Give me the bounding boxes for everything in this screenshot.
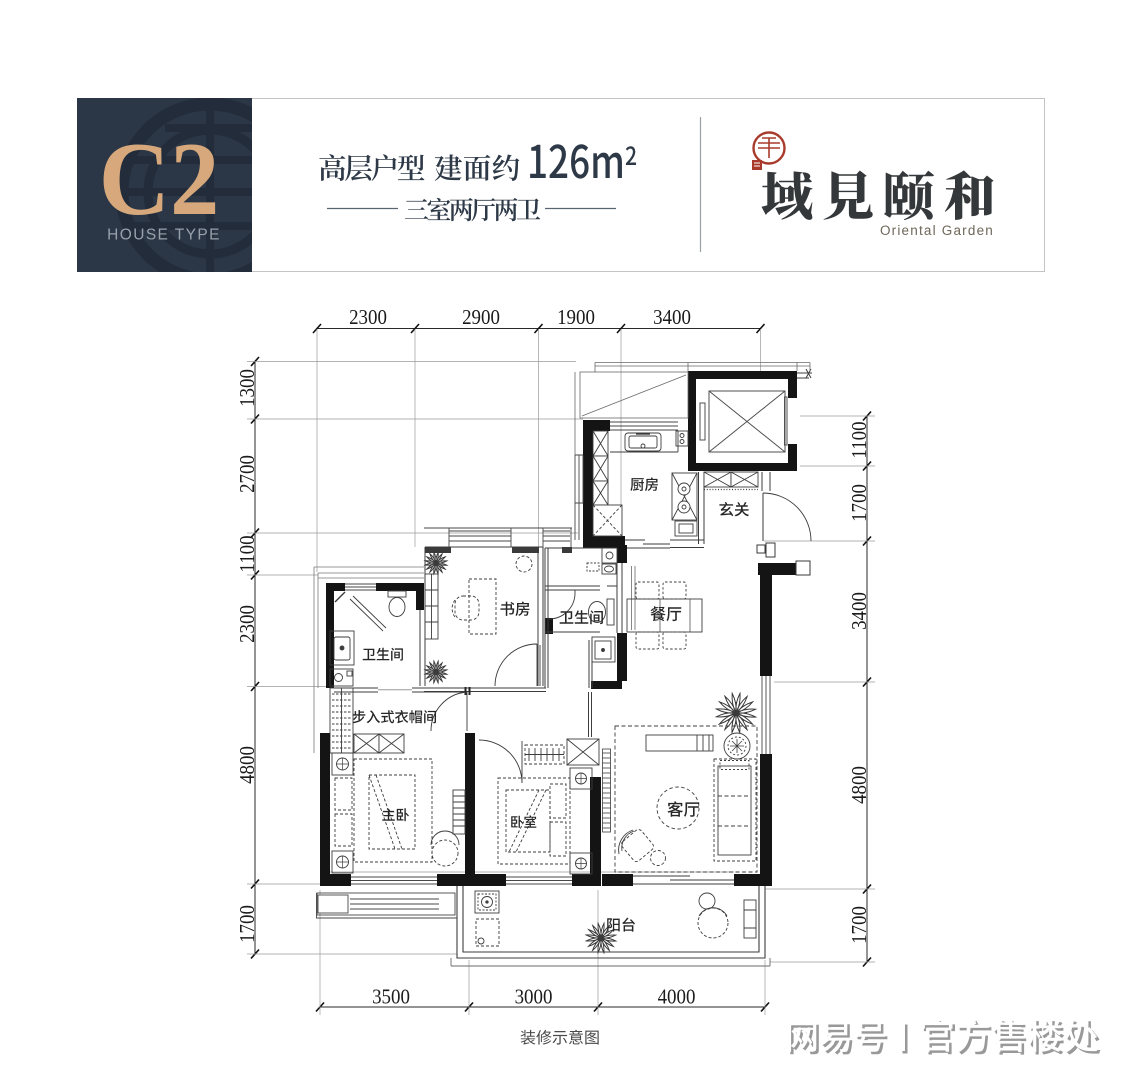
svg-text:1700: 1700 xyxy=(236,905,259,943)
svg-text:Oriental Garden: Oriental Garden xyxy=(880,223,994,238)
svg-text:2900: 2900 xyxy=(462,306,500,329)
svg-text:2700: 2700 xyxy=(236,455,259,493)
svg-text:3000: 3000 xyxy=(515,985,553,1008)
svg-text:3400: 3400 xyxy=(848,592,871,630)
svg-text:1100: 1100 xyxy=(236,535,259,572)
svg-text:1100: 1100 xyxy=(848,421,871,458)
svg-text:4000: 4000 xyxy=(658,985,696,1008)
svg-text:HOUSE TYPE: HOUSE TYPE xyxy=(107,227,221,244)
svg-text:1700: 1700 xyxy=(848,484,871,522)
svg-text:1300: 1300 xyxy=(236,369,259,407)
svg-text:3400: 3400 xyxy=(653,306,691,329)
svg-text:3500: 3500 xyxy=(372,985,410,1008)
svg-text:C2: C2 xyxy=(99,121,220,237)
svg-text:1900: 1900 xyxy=(557,306,595,329)
svg-text:4800: 4800 xyxy=(236,746,259,784)
svg-text:2300: 2300 xyxy=(236,605,259,643)
svg-text:2300: 2300 xyxy=(349,306,387,329)
svg-text:4800: 4800 xyxy=(848,766,871,804)
svg-text:1700: 1700 xyxy=(848,906,871,944)
